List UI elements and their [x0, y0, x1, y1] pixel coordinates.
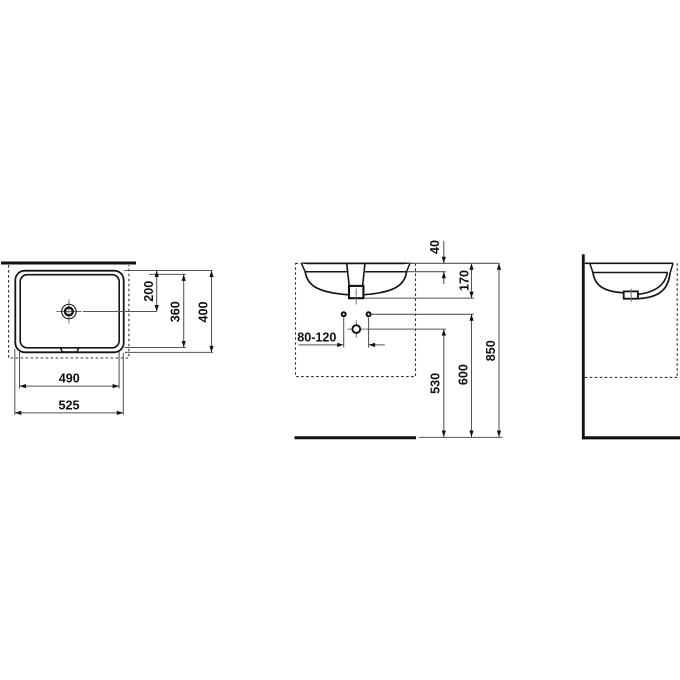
svg-text:600: 600	[456, 364, 470, 385]
svg-text:80-120: 80-120	[297, 331, 336, 345]
svg-text:525: 525	[58, 398, 79, 412]
svg-text:170: 170	[457, 270, 471, 291]
svg-text:200: 200	[142, 281, 156, 302]
svg-text:400: 400	[197, 301, 211, 322]
svg-text:360: 360	[169, 301, 183, 322]
svg-text:40: 40	[428, 240, 442, 254]
svg-text:530: 530	[428, 373, 442, 394]
svg-text:490: 490	[59, 372, 80, 386]
svg-text:850: 850	[484, 340, 498, 361]
